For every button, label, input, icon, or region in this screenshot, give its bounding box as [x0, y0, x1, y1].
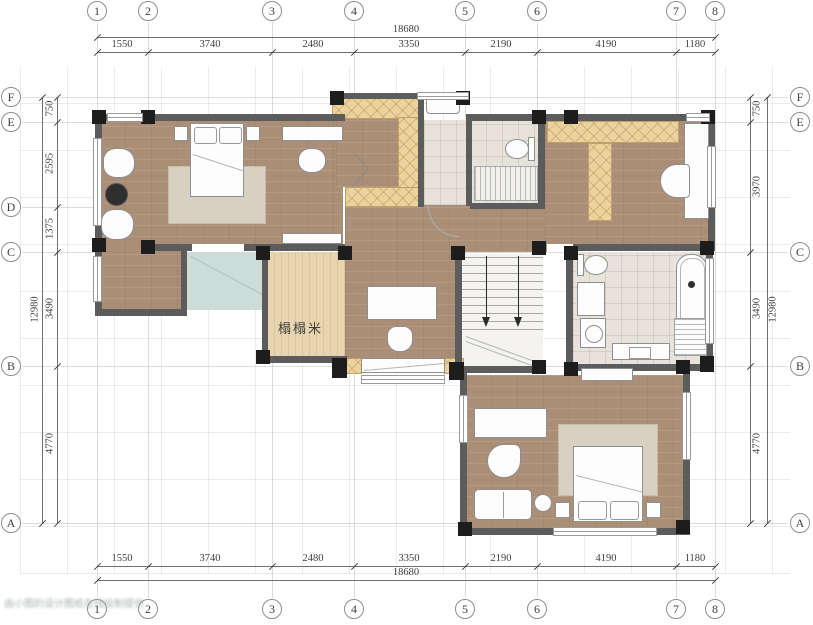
grid-bubble-label: 2 — [145, 602, 151, 617]
dimension-line-overall-top — [97, 37, 715, 38]
stool — [298, 148, 326, 173]
grid-bubble: 7 — [666, 1, 686, 21]
dimension-label: 3740 — [188, 553, 232, 564]
dimension-line-segments-left — [57, 97, 58, 523]
window — [459, 395, 468, 443]
armchair — [101, 209, 134, 240]
desk — [474, 408, 547, 438]
basin-icon — [629, 347, 651, 359]
dimension-label: 1550 — [100, 553, 144, 564]
grid-bubble: E — [1, 112, 21, 132]
dimension-label: 2480 — [291, 39, 335, 50]
dimension-label: 3490 — [752, 289, 763, 329]
dresser — [581, 368, 633, 381]
dimension-label: 1550 — [100, 39, 144, 50]
grid-bubble: 4 — [344, 1, 364, 21]
grid-bubble: F — [790, 87, 810, 107]
washing-machine — [580, 318, 606, 348]
grid-bubble-label: 2 — [145, 4, 151, 19]
closet-floor — [336, 117, 400, 187]
grid-bubble-label: 7 — [673, 4, 679, 19]
watermark: 由小图的设计图纸在线绘制提供 — [4, 595, 144, 610]
towel-radiator — [674, 318, 707, 356]
grid-bubble-label: 5 — [462, 4, 468, 19]
grid-bubble-label: 4 — [351, 602, 357, 617]
grid-bubble: 8 — [705, 1, 725, 21]
bay-window-seat — [361, 358, 445, 373]
lounge-floor — [99, 246, 183, 310]
desk-chair — [387, 326, 413, 352]
wardrobe-cabinet — [588, 143, 612, 221]
dimension-label: 1375 — [45, 209, 56, 249]
wardrobe-cabinet — [332, 97, 422, 119]
shower-area — [474, 166, 538, 201]
nightstand — [174, 126, 188, 141]
faucet-icon — [688, 281, 695, 288]
bed — [190, 123, 244, 197]
grid-bubble: 1 — [87, 1, 107, 21]
window — [705, 258, 714, 344]
grid-line-col — [715, 22, 716, 598]
glass-skylight — [187, 252, 263, 310]
hallway-tile-floor — [424, 120, 468, 205]
armchair — [487, 444, 521, 478]
dimension-line-overall-left — [42, 97, 43, 523]
pillow — [610, 501, 639, 520]
dimension-label: 3490 — [45, 289, 56, 329]
window — [686, 113, 710, 122]
grid-bubble: 6 — [527, 1, 547, 21]
grid-bubble-label: 8 — [712, 602, 718, 617]
stair-treads — [462, 254, 543, 330]
grid-bubble-label: 1 — [94, 4, 100, 19]
stair-arrow — [518, 256, 519, 318]
dimension-label: 1180 — [673, 553, 717, 564]
stair-arrow-down-icon — [514, 317, 522, 327]
bathroom-vanity — [612, 343, 670, 360]
pillow — [578, 501, 607, 520]
grid-bubble-label: A — [7, 516, 16, 531]
nightstand — [555, 502, 570, 518]
grid-bubble-label: 7 — [673, 602, 679, 617]
grid-bubble: 2 — [138, 1, 158, 21]
pillow — [194, 127, 217, 144]
wardrobe-cabinet — [547, 121, 679, 143]
dimension-label: 750 — [752, 89, 763, 129]
grid-bubble-label: 3 — [269, 602, 275, 617]
window — [682, 392, 691, 460]
nightstand — [246, 126, 260, 141]
dimension-label: 1180 — [673, 39, 717, 50]
shower-partition — [577, 282, 605, 316]
window — [707, 146, 716, 208]
grid-bubble: C — [1, 242, 21, 262]
window — [553, 527, 657, 536]
grid-bubble: B — [790, 356, 810, 376]
grid-bubble-label: B — [796, 359, 804, 374]
grid-bubble: F — [1, 87, 21, 107]
grid-bubble: 7 — [666, 599, 686, 619]
bed — [573, 446, 643, 522]
blanket-fold — [576, 475, 644, 493]
dimension-label: 4770 — [752, 424, 763, 464]
nightstand — [646, 502, 661, 518]
dimension-line-segments-top — [97, 52, 715, 53]
grid-bubble: 5 — [455, 1, 475, 21]
sofa-cushion-line — [503, 492, 504, 518]
pillow — [219, 127, 242, 144]
dimension-label: 3350 — [387, 553, 431, 564]
toilet — [505, 139, 529, 159]
grid-bubble-label: B — [7, 359, 15, 374]
grid-bubble: C — [790, 242, 810, 262]
sofa — [474, 489, 532, 520]
dimension-label: 3970 — [752, 167, 763, 207]
grid-bubble-label: E — [7, 115, 14, 130]
grid-bubble-label: 3 — [269, 4, 275, 19]
window — [417, 92, 469, 100]
window — [107, 113, 143, 122]
floor-plan-canvas: 1 2 3 4 5 6 7 8 1 2 3 4 5 6 7 8 F E D C … — [0, 0, 813, 625]
grid-bubble-label: F — [8, 90, 15, 105]
grid-bubble: 3 — [262, 599, 282, 619]
desk — [367, 286, 437, 320]
tatami-room-label: 榻榻米 — [278, 318, 323, 337]
wardrobe-cabinet — [345, 187, 422, 207]
window — [93, 138, 102, 226]
stair-arrow-down-icon — [482, 317, 490, 327]
washer-door-icon — [585, 325, 603, 343]
dimension-label: 3350 — [387, 39, 431, 50]
grid-bubble: 4 — [344, 599, 364, 619]
armchair — [103, 148, 135, 178]
tv-console — [282, 233, 342, 244]
grid-bubble-label: E — [796, 115, 803, 130]
grid-bubble: 8 — [705, 599, 725, 619]
grid-bubble: D — [1, 197, 21, 217]
grid-bubble-label: A — [796, 516, 805, 531]
dimension-label: 4190 — [584, 39, 628, 50]
toilet-tank — [528, 137, 535, 161]
stair-arrow — [486, 256, 487, 318]
grid-bubble-label: D — [7, 200, 16, 215]
grid-bubble: A — [1, 513, 21, 533]
tatami-room-floor — [267, 252, 345, 358]
blanket-fold — [193, 154, 246, 172]
side-table — [534, 494, 552, 512]
dimension-label: 2595 — [45, 144, 56, 184]
grid-bubble-label: C — [796, 245, 804, 260]
grid-bubble: 5 — [455, 599, 475, 619]
grid-bubble-label: C — [7, 245, 15, 260]
dimension-label: 12980 — [768, 290, 779, 330]
window — [93, 256, 102, 302]
side-table — [105, 183, 128, 206]
window — [361, 375, 445, 384]
grid-bubble-label: 6 — [534, 602, 540, 617]
dressing-table — [282, 126, 343, 141]
toilet-tank — [577, 254, 584, 276]
grid-bubble-label: 8 — [712, 4, 718, 19]
door-sill — [192, 244, 244, 252]
dimension-label: 18680 — [380, 24, 432, 35]
dimension-label: 2480 — [291, 553, 335, 564]
dimension-label: 4770 — [45, 424, 56, 464]
grid-bubble: A — [790, 513, 810, 533]
grid-bubble: 3 — [262, 1, 282, 21]
toilet — [584, 255, 608, 275]
grid-bubble-label: 5 — [462, 602, 468, 617]
dimension-line-overall-bottom — [97, 580, 715, 581]
grid-bubble-label: 6 — [534, 4, 540, 19]
grid-bubble-label: 4 — [351, 4, 357, 19]
grid-bubble: E — [790, 112, 810, 132]
dimension-label: 750 — [45, 89, 56, 129]
wall-hung-toilet — [660, 164, 690, 198]
dimension-label: 2190 — [479, 39, 523, 50]
grid-bubble-label: F — [797, 90, 804, 105]
grid-bubble: B — [1, 356, 21, 376]
dimension-label: 18680 — [380, 567, 432, 578]
dimension-label: 2190 — [479, 553, 523, 564]
grid-bubble: 6 — [527, 599, 547, 619]
dimension-label: 3740 — [188, 39, 232, 50]
dimension-label: 12980 — [30, 290, 41, 330]
dimension-label: 4190 — [584, 553, 628, 564]
